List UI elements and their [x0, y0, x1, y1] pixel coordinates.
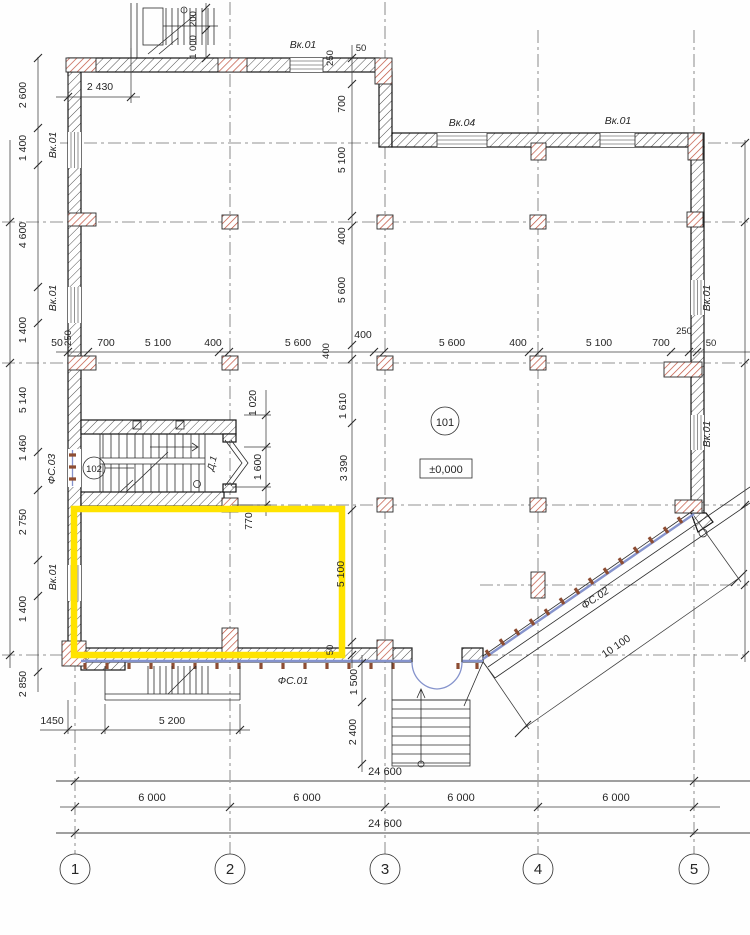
- dim-mid: 700: [652, 337, 670, 349]
- dim-top: 1 000: [188, 35, 199, 59]
- room-number: 101: [436, 417, 454, 429]
- dim-span: 6 000: [447, 792, 475, 804]
- dim-mid: 400: [509, 337, 527, 349]
- dim-entry: 1 500: [348, 669, 360, 695]
- door-label: Д.1: [205, 455, 220, 473]
- facade-bottom: [81, 661, 483, 669]
- dim-mid: 5 100: [586, 337, 612, 349]
- dim-mid: 5 600: [285, 337, 311, 349]
- dim-left: 1 400: [17, 596, 29, 622]
- dim-axis3: 700: [336, 95, 348, 113]
- dim-axis3: 400: [336, 227, 348, 245]
- dim-left: 2 600: [17, 82, 29, 108]
- dim-stair: 1 600: [252, 454, 264, 480]
- facade-label: ФС.03: [46, 454, 58, 485]
- dim-overall: 24 600: [368, 766, 402, 778]
- window-label: Вк.01: [290, 39, 317, 51]
- window-left-fs03: [68, 449, 81, 487]
- dim-mid: 400: [321, 343, 332, 359]
- dim-span: 6 000: [293, 792, 321, 804]
- window-label: Вк.01: [47, 564, 59, 591]
- dim-mid: 250: [676, 326, 692, 337]
- axis-label: 2: [226, 861, 234, 878]
- dim-porch: 5 200: [159, 715, 185, 727]
- entrance: [392, 648, 483, 767]
- dim-mid: 400: [354, 329, 372, 341]
- facade-label: ФС.01: [278, 675, 309, 687]
- dim-overall: 24 600: [368, 818, 402, 830]
- dim-mid: 5 100: [145, 337, 171, 349]
- dim-axis3: 50: [325, 645, 336, 656]
- window-label: Вк.01: [701, 285, 713, 312]
- exterior-stair-left: [105, 666, 240, 700]
- dim-mid: 50: [51, 337, 63, 349]
- axis-label: 4: [534, 861, 542, 878]
- window-label: Вк.01: [605, 115, 632, 127]
- room-number: 102: [86, 464, 102, 475]
- dim-axis3: 50: [356, 43, 367, 54]
- dim-mid: 400: [204, 337, 222, 349]
- dim-span: 6 000: [138, 792, 166, 804]
- dim-left: 1 460: [17, 435, 29, 461]
- dim-axis3: 5 600: [336, 277, 348, 303]
- dim-axis3: 1 610: [337, 393, 349, 419]
- window-label: Вк.04: [449, 117, 476, 129]
- dim-left: 1 400: [17, 317, 29, 343]
- window-upper-1: [437, 133, 487, 147]
- window-label: Вк.01: [701, 421, 713, 448]
- dim-mid: 250: [63, 330, 74, 346]
- window-label: Вк.01: [47, 132, 59, 159]
- highlight-rectangle[interactable]: [74, 509, 342, 655]
- dim-left: 5 140: [17, 387, 29, 413]
- window-left-2: [68, 287, 81, 323]
- window-left-1: [68, 132, 81, 168]
- dim-left: 1 400: [17, 135, 29, 161]
- dim-top: 2 430: [87, 81, 113, 93]
- dim-left: 2 750: [17, 509, 29, 535]
- dim-top: 200: [188, 11, 199, 27]
- floor-plan-page: 1 2 3 4 5 24 600 24 600 6 000 6 000 6 00…: [0, 0, 750, 935]
- dimension-lines: [6, 45, 750, 837]
- window-upper-2: [600, 133, 635, 147]
- dim-axis3: 5 100: [336, 147, 348, 173]
- dim-axis3: 5 100: [335, 561, 347, 587]
- elevation-mark: ±0,000: [429, 464, 463, 476]
- axis-label: 1: [71, 861, 79, 878]
- dim-left: 4 600: [17, 222, 29, 248]
- dim-mid: 5 600: [439, 337, 465, 349]
- exterior-stair-top: [131, 3, 218, 62]
- room-marks: [83, 407, 472, 479]
- dim-axis3: 250: [325, 50, 336, 66]
- dim-stair: 770: [243, 512, 255, 530]
- dim-left: 2 850: [17, 671, 29, 697]
- entrance-door: [412, 662, 462, 689]
- dim-span: 6 000: [602, 792, 630, 804]
- dim-diagonal: 10 100: [600, 632, 633, 660]
- dim-axis3: 3 390: [338, 455, 350, 481]
- axis-label: 3: [381, 861, 389, 878]
- dim-mid: 700: [97, 337, 115, 349]
- dim-mid: 50: [706, 338, 717, 349]
- dim-stair: 1 020: [247, 390, 259, 416]
- dim-porch: 1450: [40, 715, 64, 727]
- window-label: Вк.01: [47, 285, 59, 312]
- window-top: [290, 58, 323, 72]
- dim-entry: 2 400: [347, 719, 359, 745]
- axis-label: 5: [690, 861, 698, 878]
